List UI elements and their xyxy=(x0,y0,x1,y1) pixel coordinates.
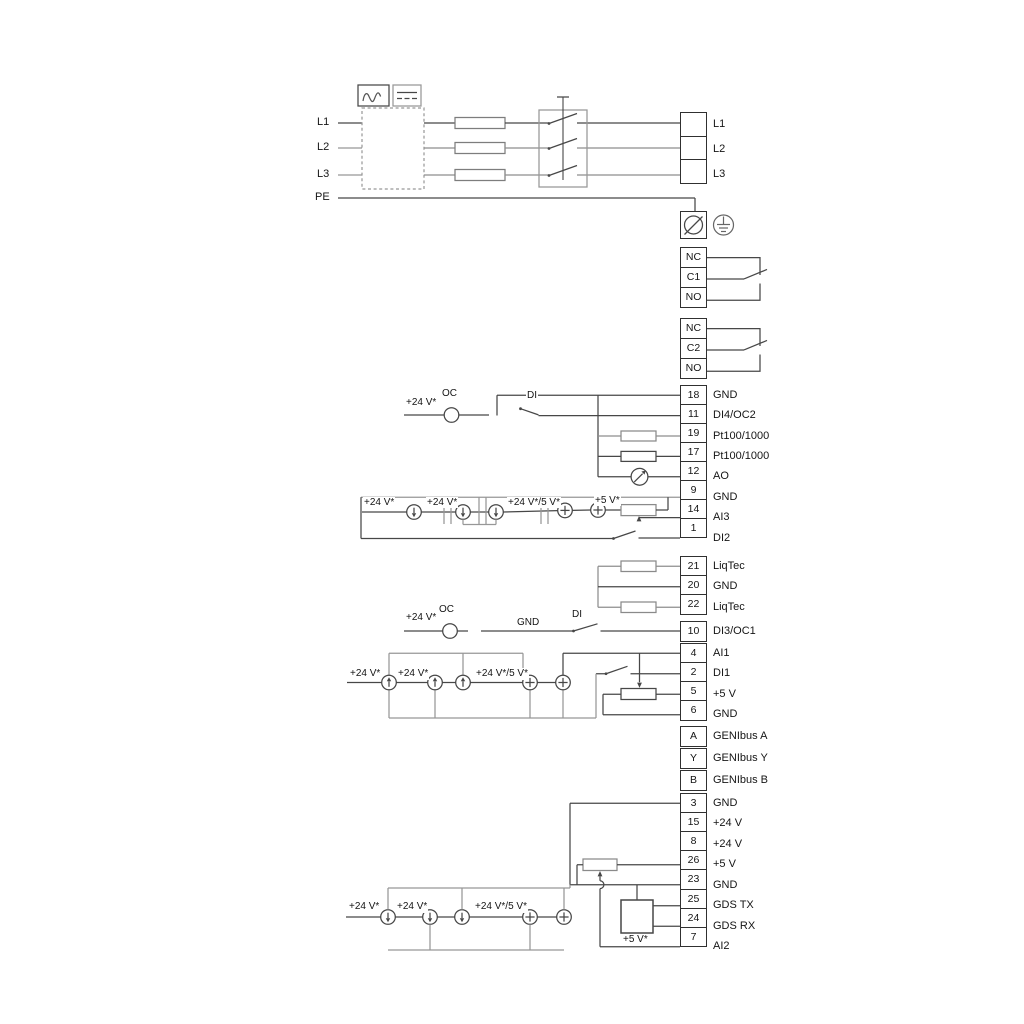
terminal-number: 3 xyxy=(691,798,697,809)
terminal-cell: 17 xyxy=(680,442,707,462)
terminal-cell xyxy=(680,211,707,239)
terminal-cell: 9 xyxy=(680,480,707,500)
terminal-cell xyxy=(680,112,707,137)
terminal-label: DI4/OC2 xyxy=(713,409,756,421)
terminal-label: L3 xyxy=(713,168,725,180)
terminal-number: 25 xyxy=(688,894,700,905)
terminal-label: GND xyxy=(713,879,737,891)
wiring-diagram-page: L1L2L3NCC1NONCC2NOGNDDI4/OC2Pt100/1000Pt… xyxy=(0,0,1024,1024)
terminal-cell: 23 xyxy=(680,869,707,890)
terminal-number: B xyxy=(690,775,697,786)
terminal-label: GENIbus B xyxy=(713,774,768,786)
terminal-label: GENIbus Y xyxy=(713,752,768,764)
terminal-cell: NO xyxy=(680,358,707,379)
terminal-label: AO xyxy=(713,470,729,482)
terminal-number: 4 xyxy=(691,648,697,659)
terminal-number: 18 xyxy=(688,390,700,401)
terminal-number: 23 xyxy=(688,874,700,885)
terminal-label: AI3 xyxy=(713,511,730,523)
terminal-cell: B xyxy=(680,770,707,791)
terminal-cell: 24 xyxy=(680,908,707,929)
terminal-label: +5 V xyxy=(713,688,736,700)
terminal-label: AI2 xyxy=(713,940,730,952)
mains-label-l2: L2 xyxy=(317,141,329,153)
terminal-label: GND xyxy=(713,389,737,401)
terminal-number: C2 xyxy=(687,343,700,354)
terminal-block-relay2: NCC2NO xyxy=(680,318,707,379)
label-ai3-supply-d: +5 V* xyxy=(594,495,621,507)
terminal-cell: Y xyxy=(680,748,707,769)
terminal-number: 5 xyxy=(691,686,697,697)
label-r10-oc: OC xyxy=(438,604,455,616)
terminal-cell: 2 xyxy=(680,662,707,683)
terminal-label: LiqTec xyxy=(713,560,745,572)
label-ai3-supply-b: +24 V* xyxy=(426,497,458,509)
terminal-number: 15 xyxy=(688,817,700,828)
terminal-label: GND xyxy=(713,580,737,592)
terminal-block-genibus-b: B xyxy=(680,770,707,791)
terminal-cell xyxy=(680,159,707,184)
label-r10-gnd: GND xyxy=(516,617,540,629)
label-ai2-supply-a: +24 V* xyxy=(348,901,380,913)
terminal-number: 12 xyxy=(688,466,700,477)
terminal-label: Pt100/1000 xyxy=(713,430,769,442)
terminal-label: DI3/OC1 xyxy=(713,625,756,637)
terminal-label: GND xyxy=(713,491,737,503)
terminal-number: 10 xyxy=(688,626,700,637)
terminal-number: 26 xyxy=(688,855,700,866)
terminal-number: Y xyxy=(690,753,697,764)
label-r11-oc: OC xyxy=(441,388,458,400)
terminal-number: 7 xyxy=(691,932,697,943)
label-r10-supply: +24 V* xyxy=(405,612,437,624)
terminal-number: 24 xyxy=(688,913,700,924)
mains-label-l3: L3 xyxy=(317,168,329,180)
terminal-label: +24 V xyxy=(713,817,742,829)
terminal-cell: NC xyxy=(680,318,707,339)
terminal-number: 20 xyxy=(688,580,700,591)
terminal-number: NO xyxy=(686,292,702,303)
terminal-block-relay1: NCC1NO xyxy=(680,247,707,308)
terminal-block-genibus-a: A xyxy=(680,726,707,747)
label-ai1-supply-c: +24 V*/5 V* xyxy=(475,668,529,680)
terminal-block-io1: 18111917129141 xyxy=(680,385,707,538)
label-ai1-supply-a: +24 V* xyxy=(349,668,381,680)
terminal-label: DI2 xyxy=(713,532,730,544)
terminal-number: 21 xyxy=(688,561,700,572)
terminal-label: DI1 xyxy=(713,667,730,679)
terminal-number: 19 xyxy=(688,428,700,439)
terminal-number: 17 xyxy=(688,447,700,458)
mains-label-l1: L1 xyxy=(317,116,329,128)
terminal-cell: 26 xyxy=(680,850,707,871)
mains-label-pe: PE xyxy=(315,191,330,203)
terminal-number: 8 xyxy=(691,836,697,847)
terminal-block-liqtec: 212022 xyxy=(680,556,707,615)
terminal-number: 14 xyxy=(688,504,700,515)
terminal-number: NC xyxy=(686,252,701,263)
terminal-cell: 8 xyxy=(680,831,707,852)
terminal-cell: 7 xyxy=(680,927,707,948)
terminal-number: 22 xyxy=(688,599,700,610)
terminal-block-genibus-y: Y xyxy=(680,748,707,769)
terminal-label: L1 xyxy=(713,118,725,130)
terminal-label: Pt100/1000 xyxy=(713,450,769,462)
label-r11-supply: +24 V* xyxy=(405,397,437,409)
terminal-number: 6 xyxy=(691,705,697,716)
terminal-block-io2: 4256 xyxy=(680,643,707,721)
terminal-block-power xyxy=(680,112,707,184)
terminal-label: +5 V xyxy=(713,858,736,870)
terminal-cell: 6 xyxy=(680,700,707,721)
terminal-cell: 19 xyxy=(680,423,707,443)
label-ai3-supply-c: +24 V*/5 V* xyxy=(507,497,561,509)
terminal-block-io3: 3158262325247 xyxy=(680,793,707,947)
terminal-cell: 14 xyxy=(680,499,707,519)
terminal-cell: 22 xyxy=(680,594,707,615)
terminal-label: GND xyxy=(713,708,737,720)
terminal-label: GENIbus A xyxy=(713,730,767,742)
terminal-cell: NC xyxy=(680,247,707,268)
terminal-cell: 18 xyxy=(680,385,707,405)
terminal-cell: 1 xyxy=(680,518,707,538)
terminal-label: +24 V xyxy=(713,838,742,850)
terminal-number: 1 xyxy=(691,523,697,534)
terminal-number: 9 xyxy=(691,485,697,496)
terminal-cell xyxy=(680,136,707,161)
terminal-label: L2 xyxy=(713,143,725,155)
terminal-number: A xyxy=(690,731,697,742)
terminal-block-di3: 10 xyxy=(680,621,707,642)
terminal-number: 11 xyxy=(688,409,699,420)
label-ai2-supply-b: +24 V* xyxy=(396,901,428,913)
terminal-label: LiqTec xyxy=(713,601,745,613)
terminal-number: NC xyxy=(686,323,701,334)
terminal-cell: 5 xyxy=(680,681,707,702)
terminal-cell: 3 xyxy=(680,793,707,814)
terminal-cell: 10 xyxy=(680,621,707,642)
terminal-cell: C2 xyxy=(680,338,707,359)
terminal-cell: A xyxy=(680,726,707,747)
terminal-cell: C1 xyxy=(680,267,707,288)
terminal-cell: 20 xyxy=(680,575,707,596)
terminal-cell: 21 xyxy=(680,556,707,577)
label-ai1-supply-b: +24 V* xyxy=(397,668,429,680)
terminal-cell: 11 xyxy=(680,404,707,424)
label-ai2-supply-c: +24 V*/5 V* xyxy=(474,901,528,913)
terminal-number: NO xyxy=(686,363,702,374)
terminal-number: C1 xyxy=(687,272,700,283)
terminal-cell: 25 xyxy=(680,889,707,910)
terminal-cell: 4 xyxy=(680,643,707,664)
label-r10-di: DI xyxy=(571,609,583,621)
terminal-label: GDS TX xyxy=(713,899,754,911)
terminal-cell: 12 xyxy=(680,461,707,481)
terminal-number: 2 xyxy=(691,667,697,678)
label-r11-di: DI xyxy=(526,390,538,402)
label-ai3-supply-a: +24 V* xyxy=(363,497,395,509)
label-ai2-supply-d: +5 V* xyxy=(622,934,649,946)
terminal-block-pe-terminal xyxy=(680,211,707,239)
terminal-label: GND xyxy=(713,797,737,809)
terminal-cell: 15 xyxy=(680,812,707,833)
terminal-cell: NO xyxy=(680,287,707,308)
wiring-svg xyxy=(0,0,1024,1024)
terminal-label: GDS RX xyxy=(713,920,755,932)
terminal-label: AI1 xyxy=(713,647,730,659)
